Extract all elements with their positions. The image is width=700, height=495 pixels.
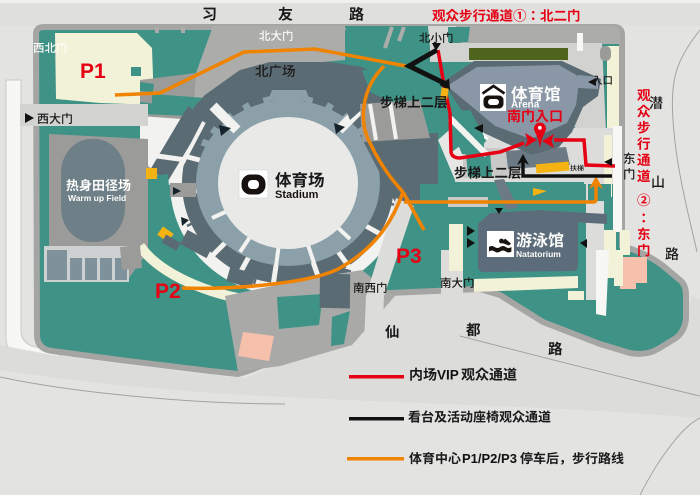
svg-text:P1/P2/P3: P1/P2/P3	[462, 451, 517, 466]
svg-text:P3: P3	[396, 245, 422, 268]
svg-text:P1: P1	[80, 60, 106, 83]
svg-text:Natatorium: Natatorium	[516, 249, 561, 259]
svg-text:Warm up Field: Warm up Field	[68, 193, 126, 203]
svg-text:Arena: Arena	[511, 100, 540, 111]
svg-text:VIP: VIP	[437, 368, 459, 383]
svg-text:P2: P2	[155, 280, 181, 303]
svg-text:Stadium: Stadium	[275, 189, 319, 201]
